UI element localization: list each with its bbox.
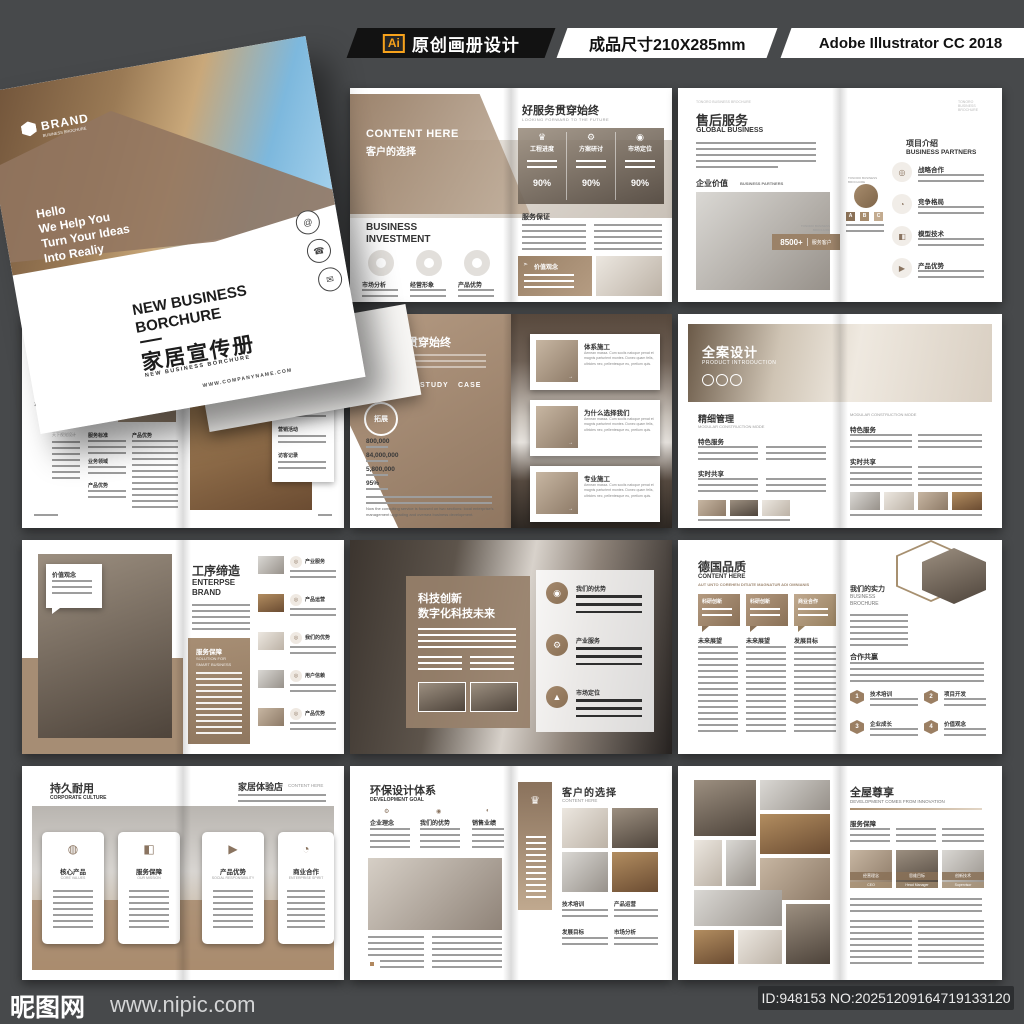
- text-lines: [290, 646, 336, 654]
- stat-number: 800,000: [366, 438, 390, 445]
- spread-enterprise: 价值观念 工序缔造 ENTERPSE BRAND 服务保障 SOLUTION F…: [22, 540, 344, 754]
- feature-card: → 体系施工 Aenean massa. Cum sociis natoque …: [530, 334, 660, 390]
- half-icon: ◐: [486, 808, 490, 814]
- item-label: 产品优势: [305, 710, 325, 717]
- text-lines: [798, 608, 828, 620]
- right-subtitle: CONTENT HERE: [562, 798, 597, 803]
- header-segment-software: Adobe Illustrator CC 2018: [781, 28, 1024, 58]
- section-heading: 实时共享: [698, 468, 724, 478]
- right-subtitle: MODULAR CONSTRUCTION MODE: [850, 412, 916, 417]
- card-text: Aenean massa. Cum sociis natoque penat e…: [584, 483, 654, 517]
- right-title: 家居体验店: [238, 780, 283, 793]
- card-label-en: OUR MISSION: [118, 876, 180, 880]
- text-lines: [368, 936, 424, 958]
- text-lines: [287, 890, 325, 928]
- gear-icon: ⚙: [384, 808, 389, 815]
- panel-heading: 营销活动: [278, 426, 298, 433]
- culture-card: ◧ 服务保障 OUR MISSION: [118, 832, 180, 944]
- item-icon-circle: ◎: [290, 594, 302, 606]
- text-lines: [870, 728, 918, 738]
- text-lines: [698, 478, 758, 496]
- arrow-icon: ➣: [523, 261, 528, 268]
- contact-circle: [730, 374, 742, 386]
- text-lines: [576, 160, 606, 170]
- right-subtitle: BUSINESS PARTNERS: [906, 149, 976, 156]
- text-lines: [362, 289, 398, 299]
- person-photo: 创新技术 Supervisor: [942, 850, 984, 888]
- caption-overlay: 思维目标: [896, 872, 938, 880]
- text-lines: [88, 490, 126, 502]
- industry-icon-circle: ⚙: [546, 634, 568, 656]
- text-lines: [850, 828, 890, 844]
- arrow-icon: →: [568, 440, 573, 446]
- play-icon: ▶: [899, 264, 905, 273]
- feature-card: → 为什么选择我们 Aenean massa. Cum sociis natoq…: [530, 400, 660, 456]
- text-lines: [766, 446, 826, 462]
- grid-photo: [612, 852, 658, 892]
- text-lines: [52, 441, 80, 481]
- text-lines: [794, 646, 836, 732]
- clients-badge: 8500+ 服务客户: [772, 234, 840, 250]
- text-lines: [366, 496, 492, 504]
- page-fold: [832, 766, 848, 980]
- bubble-tail: [798, 626, 805, 632]
- left-title: 德国品质: [698, 558, 746, 575]
- card-label-cn: 产品优势: [202, 866, 264, 876]
- adobe-ai-icon: Ai: [383, 34, 405, 53]
- thumb-photo: [730, 500, 758, 516]
- right-subtitle: DEVELOPMENT COMES FROM INNOVATION: [850, 799, 945, 804]
- column-label: 销售业绩: [472, 818, 496, 827]
- card-title: 专业施工: [584, 473, 610, 483]
- text-lines: [366, 460, 388, 464]
- section-subtitle: BUSINESS PARTNERS: [740, 181, 783, 186]
- text-lines: [290, 608, 336, 616]
- left-title: 环保设计体系: [370, 782, 436, 798]
- text-lines: [702, 608, 732, 620]
- left-subtitle: MODULAR CONSTRUCTION MODE: [698, 424, 764, 429]
- chart-icon: ◧: [118, 842, 180, 856]
- section-title: 企业价值: [696, 178, 728, 189]
- column-heading: 发展目标: [794, 636, 818, 645]
- text-lines: [88, 440, 126, 454]
- text-lines: [290, 684, 336, 692]
- header-label-software: Adobe Illustrator CC 2018: [819, 35, 1002, 52]
- card-text: Aenean massa. Cum sociis natoque penat e…: [584, 417, 654, 451]
- feature-card: → 专业施工 Aenean massa. Cum sociis natoque …: [530, 466, 660, 522]
- spread-global: TONORO BUSINESS BROCHURE 售后服务 GLOBAL BUS…: [678, 88, 1002, 302]
- collage-photo: [694, 840, 722, 886]
- watermark-bar: 昵图网 www.nipic.com ID:948153 NO:202512091…: [0, 984, 1024, 1024]
- item-thumb: [258, 670, 284, 688]
- culture-card: ▶ 产品优势 SOCIAL RESPONSIBILITY: [202, 832, 264, 944]
- spread-product: 全案设计 PRODUCT INTRODUCTION 精细管理 MODULAR C…: [678, 314, 1002, 528]
- card-label-en: ENTERPRISE SPIRIT: [278, 876, 334, 880]
- collage-photo: [760, 814, 830, 854]
- spread-culture: 持久耐用 CORPORATE CULTURE 家居体验店 CONTENT HER…: [22, 766, 344, 980]
- text-lines: [614, 937, 658, 949]
- bubble-label: 科研创新: [750, 598, 770, 605]
- text-lines: [918, 206, 984, 216]
- stat-label: 方案研讨: [567, 144, 615, 153]
- bubble-tail: [750, 626, 757, 632]
- text-lines: [522, 224, 586, 250]
- caption-overlay: 创新技术: [942, 872, 984, 880]
- text-lines: [918, 920, 984, 964]
- phone-glyph: ☎: [312, 245, 325, 258]
- item-icon-circle: ◎: [290, 556, 302, 568]
- num-label: 价值观念: [944, 720, 966, 728]
- text-lines: [918, 434, 982, 450]
- running-head: TONORO BUSINESS BROCHURE: [786, 224, 830, 232]
- number-hex: 3: [850, 720, 864, 734]
- number-hex: 1: [850, 690, 864, 704]
- expand-circle: 拓展: [364, 402, 398, 436]
- right-title: 工序缔造: [192, 562, 240, 579]
- value-box: 价值观念 ➣: [518, 256, 592, 296]
- text-lines: [698, 646, 738, 732]
- column-heading: 未来展望: [698, 636, 722, 645]
- header-segment-size: 成品尺寸210X285mm: [557, 28, 778, 58]
- rocket-icon: ▶: [202, 842, 264, 856]
- item-label: 产业服务: [305, 558, 325, 565]
- text-lines: [698, 519, 790, 523]
- tech-title-line2: 数字化科技未来: [418, 605, 495, 621]
- text-lines: [614, 909, 658, 921]
- text-lines: [562, 937, 608, 949]
- text-lines: [746, 646, 786, 732]
- abc-marker: A: [846, 212, 855, 221]
- column-heading: 产品优势: [88, 482, 108, 489]
- brown-panel: 服务保障 SOLUTION FOR SMART BUSINESS: [188, 638, 250, 744]
- text-lines: [918, 466, 982, 486]
- left-subtitle: DEVELOPMENT GOAL: [370, 797, 424, 803]
- text-lines: [366, 446, 388, 450]
- num-label: 企业成长: [870, 720, 892, 728]
- grid-photo: [562, 808, 608, 848]
- text-lines: [380, 960, 424, 970]
- text-lines: [594, 224, 662, 250]
- column-heading: 产品优势: [132, 432, 152, 439]
- num-label: 技术培训: [870, 690, 892, 698]
- page-fold: [503, 766, 519, 980]
- text-lines: [625, 160, 655, 170]
- grid-photo: [562, 852, 608, 892]
- english-paragraph: Now the consulting service is focused on…: [366, 506, 498, 518]
- collage-photo: [694, 890, 782, 926]
- column-heading: 未来展望: [746, 636, 770, 645]
- stat-number: 84,000,000: [366, 452, 399, 459]
- white-glass-panel: ◉ 我们的优势 ⚙ 产业服务 ▲ 市场定位: [536, 570, 654, 732]
- bubble-label: 商业合作: [798, 598, 818, 605]
- text-lines: [196, 672, 242, 734]
- text-lines: [562, 909, 608, 921]
- caption-overlay: 经营理念: [850, 872, 892, 880]
- num-label: 项目开发: [944, 690, 966, 698]
- kitchen-photo: [596, 256, 662, 296]
- text-lines: [696, 166, 778, 170]
- bullet-square: [370, 962, 374, 966]
- culture-card: ◔ 商业合作 ENTERPRISE SPIRIT: [278, 832, 334, 944]
- text-lines: [34, 514, 58, 518]
- value-bubble: 价值观念: [46, 564, 102, 608]
- text-lines: [88, 466, 126, 478]
- text-lines: [896, 828, 936, 844]
- thumb-photo: [762, 500, 790, 516]
- header-label-original-design: 原创画册设计: [412, 31, 520, 56]
- text-lines: [524, 274, 574, 290]
- nipic-logo: 昵图网: [10, 988, 85, 1024]
- collage-photo: [738, 930, 782, 964]
- caption-role: Head Manager: [896, 882, 938, 888]
- text-lines: [850, 662, 984, 684]
- item-thumb: [258, 708, 284, 726]
- bubble-label: 价值观念: [52, 570, 76, 579]
- competition-icon-circle: ◔: [892, 194, 912, 214]
- text-lines: [850, 614, 908, 646]
- collage-photo: [694, 780, 756, 836]
- stat-label: 工程进度: [518, 144, 566, 153]
- text-lines: [942, 828, 984, 844]
- donut-label: 市场分析: [362, 280, 386, 289]
- donut-chart: [464, 250, 490, 276]
- arrow-icon: →: [568, 374, 573, 380]
- card-label-cn: 服务保障: [118, 866, 180, 876]
- text-lines: [850, 898, 982, 914]
- abc-marker: C: [874, 212, 883, 221]
- item-label: 产品优势: [918, 260, 944, 270]
- number: 3: [855, 724, 858, 730]
- collage-photo: [726, 840, 756, 886]
- text-lines: [432, 936, 502, 972]
- item-thumb: [258, 594, 284, 612]
- caption-role: CEO: [850, 882, 892, 888]
- item-label: 市场定位: [576, 688, 600, 697]
- panel-subtitle-2: SMART BUSINESS: [196, 662, 231, 667]
- right-subtitle-1: BUSINESS: [850, 594, 875, 600]
- bulb-icon: ◍: [42, 842, 104, 856]
- item-label: 我们的优势: [305, 634, 330, 641]
- right-subtitle-2: BRAND: [192, 588, 221, 597]
- business-investment-line1: BUSINESS: [366, 222, 417, 233]
- bubble-tail: [52, 608, 60, 614]
- card-title: 体系施工: [584, 341, 610, 351]
- label: 产品运营: [614, 900, 636, 908]
- label: 技术培训: [562, 900, 584, 908]
- stat-label: 市场定位: [616, 144, 664, 153]
- strategy-icon-circle: ◎: [892, 162, 912, 182]
- running-head: TONORO BUSINESS BROCHURE: [848, 176, 888, 184]
- text-lines: [129, 890, 169, 928]
- label: 市场分析: [614, 928, 636, 936]
- text-lines: [278, 461, 326, 471]
- text-lines: [410, 289, 446, 299]
- left-subtitle: CORPORATE CULTURE: [50, 795, 106, 801]
- right-title: 客户的选择: [562, 784, 617, 799]
- advantage-icon-circle: ◉: [546, 582, 568, 604]
- column-label: 我们的优势: [420, 818, 450, 827]
- tech-title-line1: 科技创新: [418, 590, 462, 606]
- bubble-label: 科研创新: [702, 598, 722, 605]
- thumb-photo: [850, 492, 880, 510]
- column-heading: 服务标准: [88, 432, 108, 439]
- right-title: 我们的实力: [850, 584, 885, 594]
- spread-whole: 全屋尊享 DEVELOPMENT COMES FROM INNOVATION 服…: [678, 766, 1002, 980]
- accent-underline: [850, 808, 982, 810]
- keyword: CASE: [458, 382, 481, 389]
- text-lines: [918, 174, 984, 184]
- collage-photo: [786, 904, 830, 964]
- column-heading: 天下视觉设计: [52, 432, 76, 438]
- item-icon-circle: ◎: [290, 670, 302, 682]
- text-lines: [850, 514, 982, 518]
- stat-percent: 90%: [518, 178, 566, 188]
- gear-icon: ⚙: [553, 640, 561, 651]
- text-lines: [850, 434, 912, 450]
- hero-subtitle: PRODUCT INTRODUCTION: [702, 360, 776, 366]
- panel-heading: 访客记录: [278, 452, 298, 459]
- target-icon: ◉: [553, 588, 561, 599]
- speech-bubble: 科研创新: [746, 594, 788, 626]
- number: 4: [929, 724, 932, 730]
- speech-bubble: 商业合作: [794, 594, 836, 626]
- text-lines: [918, 270, 984, 280]
- text-lines: [850, 466, 912, 486]
- donut-label: 经营形象: [410, 280, 434, 289]
- caption-role: Supervisor: [942, 882, 984, 888]
- text-lines: [418, 628, 516, 650]
- gear-icon: ⚙: [567, 132, 615, 143]
- item-label: 用户信赖: [305, 672, 325, 679]
- text-lines: [526, 836, 546, 898]
- content-here-title: CONTENT HERE: [366, 128, 459, 140]
- contact-circle: [716, 374, 728, 386]
- target-icon: ◉: [616, 132, 664, 143]
- panel-title: 服务保障: [196, 646, 222, 656]
- nipic-url: www.nipic.com: [110, 992, 255, 1018]
- arrow-icon: →: [568, 506, 573, 512]
- right-subtitle-2: BROCHURE: [850, 601, 879, 607]
- text-lines: [472, 828, 504, 850]
- collage-photo: [760, 780, 830, 810]
- text-lines: [238, 794, 326, 802]
- speech-bubble: 科研创新: [698, 594, 740, 626]
- keyword: STUDY: [420, 382, 449, 389]
- content-here-subtitle: 客户的选择: [366, 143, 416, 158]
- card-label-en: SOCIAL RESPONSIBILITY: [202, 876, 264, 880]
- label: 发展目标: [562, 928, 584, 936]
- text-lines: [318, 514, 332, 518]
- target-icon: ◎: [899, 168, 906, 177]
- stat-columns: ♛ 工程进度 90% ⚙ 方案研讨 90% ◉ 市场定位 90%: [518, 132, 664, 200]
- text-lines: [576, 595, 642, 613]
- item-icon-circle: ◎: [290, 632, 302, 644]
- hero-title: 全案设计: [702, 342, 758, 361]
- stat-percent: 90%: [567, 178, 615, 188]
- item-label: 模型技术: [918, 228, 944, 238]
- clients-label: 服务客户: [812, 239, 832, 246]
- vertical-banner: ♛: [518, 782, 552, 910]
- poster-canvas: Ai 原创画册设计 成品尺寸210X285mm Adobe Illustrato…: [0, 0, 1024, 1024]
- thumb-photo: [698, 500, 726, 516]
- text-lines: [850, 920, 912, 964]
- text-lines: [52, 580, 92, 598]
- clients-count: 8500+: [780, 238, 802, 247]
- item-thumb: [258, 556, 284, 574]
- model-icon-circle: ◧: [892, 226, 912, 246]
- image-id-badge: ID:948153 NO:20251209164719133120: [758, 986, 1014, 1010]
- text-lines: [698, 446, 758, 462]
- section-heading: 特色服务: [850, 424, 876, 434]
- number: 1: [855, 694, 858, 700]
- text-lines: [470, 656, 514, 674]
- pie-icon: ◔: [278, 842, 334, 856]
- chart-icon: ◧: [898, 232, 906, 241]
- grid-photo: [612, 808, 658, 848]
- right-title: 项目介绍: [906, 138, 938, 149]
- column-label: 企业理念: [370, 818, 394, 827]
- text-lines: [750, 608, 780, 620]
- panel-subtitle-1: SOLUTION FOR: [196, 656, 226, 661]
- item-label: 竞争格局: [918, 196, 944, 206]
- section-heading: 特色服务: [698, 436, 724, 446]
- hallway-photo: [368, 858, 502, 930]
- panel-thumb: [418, 682, 466, 712]
- right-subtitle-1: ENTERPSE: [192, 578, 235, 587]
- item-label: 战略合作: [918, 164, 944, 174]
- text-lines: [53, 890, 93, 928]
- thumb-photo: [884, 492, 914, 510]
- text-lines: [366, 474, 388, 478]
- item-thumb: [258, 632, 284, 650]
- stat-percent: 90%: [616, 178, 664, 188]
- left-title: 持久耐用: [50, 780, 94, 796]
- right-page-subtitle: LOOKING FORWARD TO THE FUTURE: [522, 117, 609, 122]
- number: 2: [929, 694, 932, 700]
- thumb-photo: [952, 492, 982, 510]
- spread-eco: 环保设计体系 DEVELOPMENT GOAL ⚙ 企业理念 ◉ 我们的优势 ◐…: [350, 766, 672, 980]
- bubble-tail: [702, 626, 709, 632]
- text-lines: [458, 289, 494, 299]
- at-glyph: @: [302, 217, 313, 228]
- text-lines: [766, 478, 826, 496]
- market-icon-circle: ▲: [546, 686, 568, 708]
- text-lines: [527, 160, 557, 170]
- number-hex: 4: [924, 720, 938, 734]
- number-hex: 2: [924, 690, 938, 704]
- trend-icon: ▲: [553, 692, 562, 702]
- section-heading: 服务保障: [850, 818, 876, 828]
- expand-label: 拓展: [374, 414, 388, 424]
- trophy-icon: ♛: [518, 132, 566, 143]
- card-text: Aenean massa. Cum sociis natoque penat e…: [584, 351, 654, 385]
- target-icon: ◉: [436, 808, 441, 815]
- header-segment-left: Ai 原创画册设计: [347, 28, 556, 58]
- thumb-photo: [918, 492, 948, 510]
- trophy-icon: ♛: [518, 794, 552, 807]
- right-subtitle: CONTENT HERE: [288, 783, 323, 788]
- donut-label: 产品优势: [458, 280, 482, 289]
- item-label: 我们的优势: [576, 584, 606, 593]
- person-photo: 思维目标 Head Manager: [896, 850, 938, 888]
- text-lines: [846, 224, 884, 232]
- donut-chart: [416, 250, 442, 276]
- text-lines: [918, 238, 984, 248]
- item-icon-circle: ◎: [290, 708, 302, 720]
- mail-glyph: ✉: [325, 273, 334, 285]
- coop-heading: 合作共赢: [850, 652, 878, 662]
- column-heading: 业务领域: [88, 458, 108, 465]
